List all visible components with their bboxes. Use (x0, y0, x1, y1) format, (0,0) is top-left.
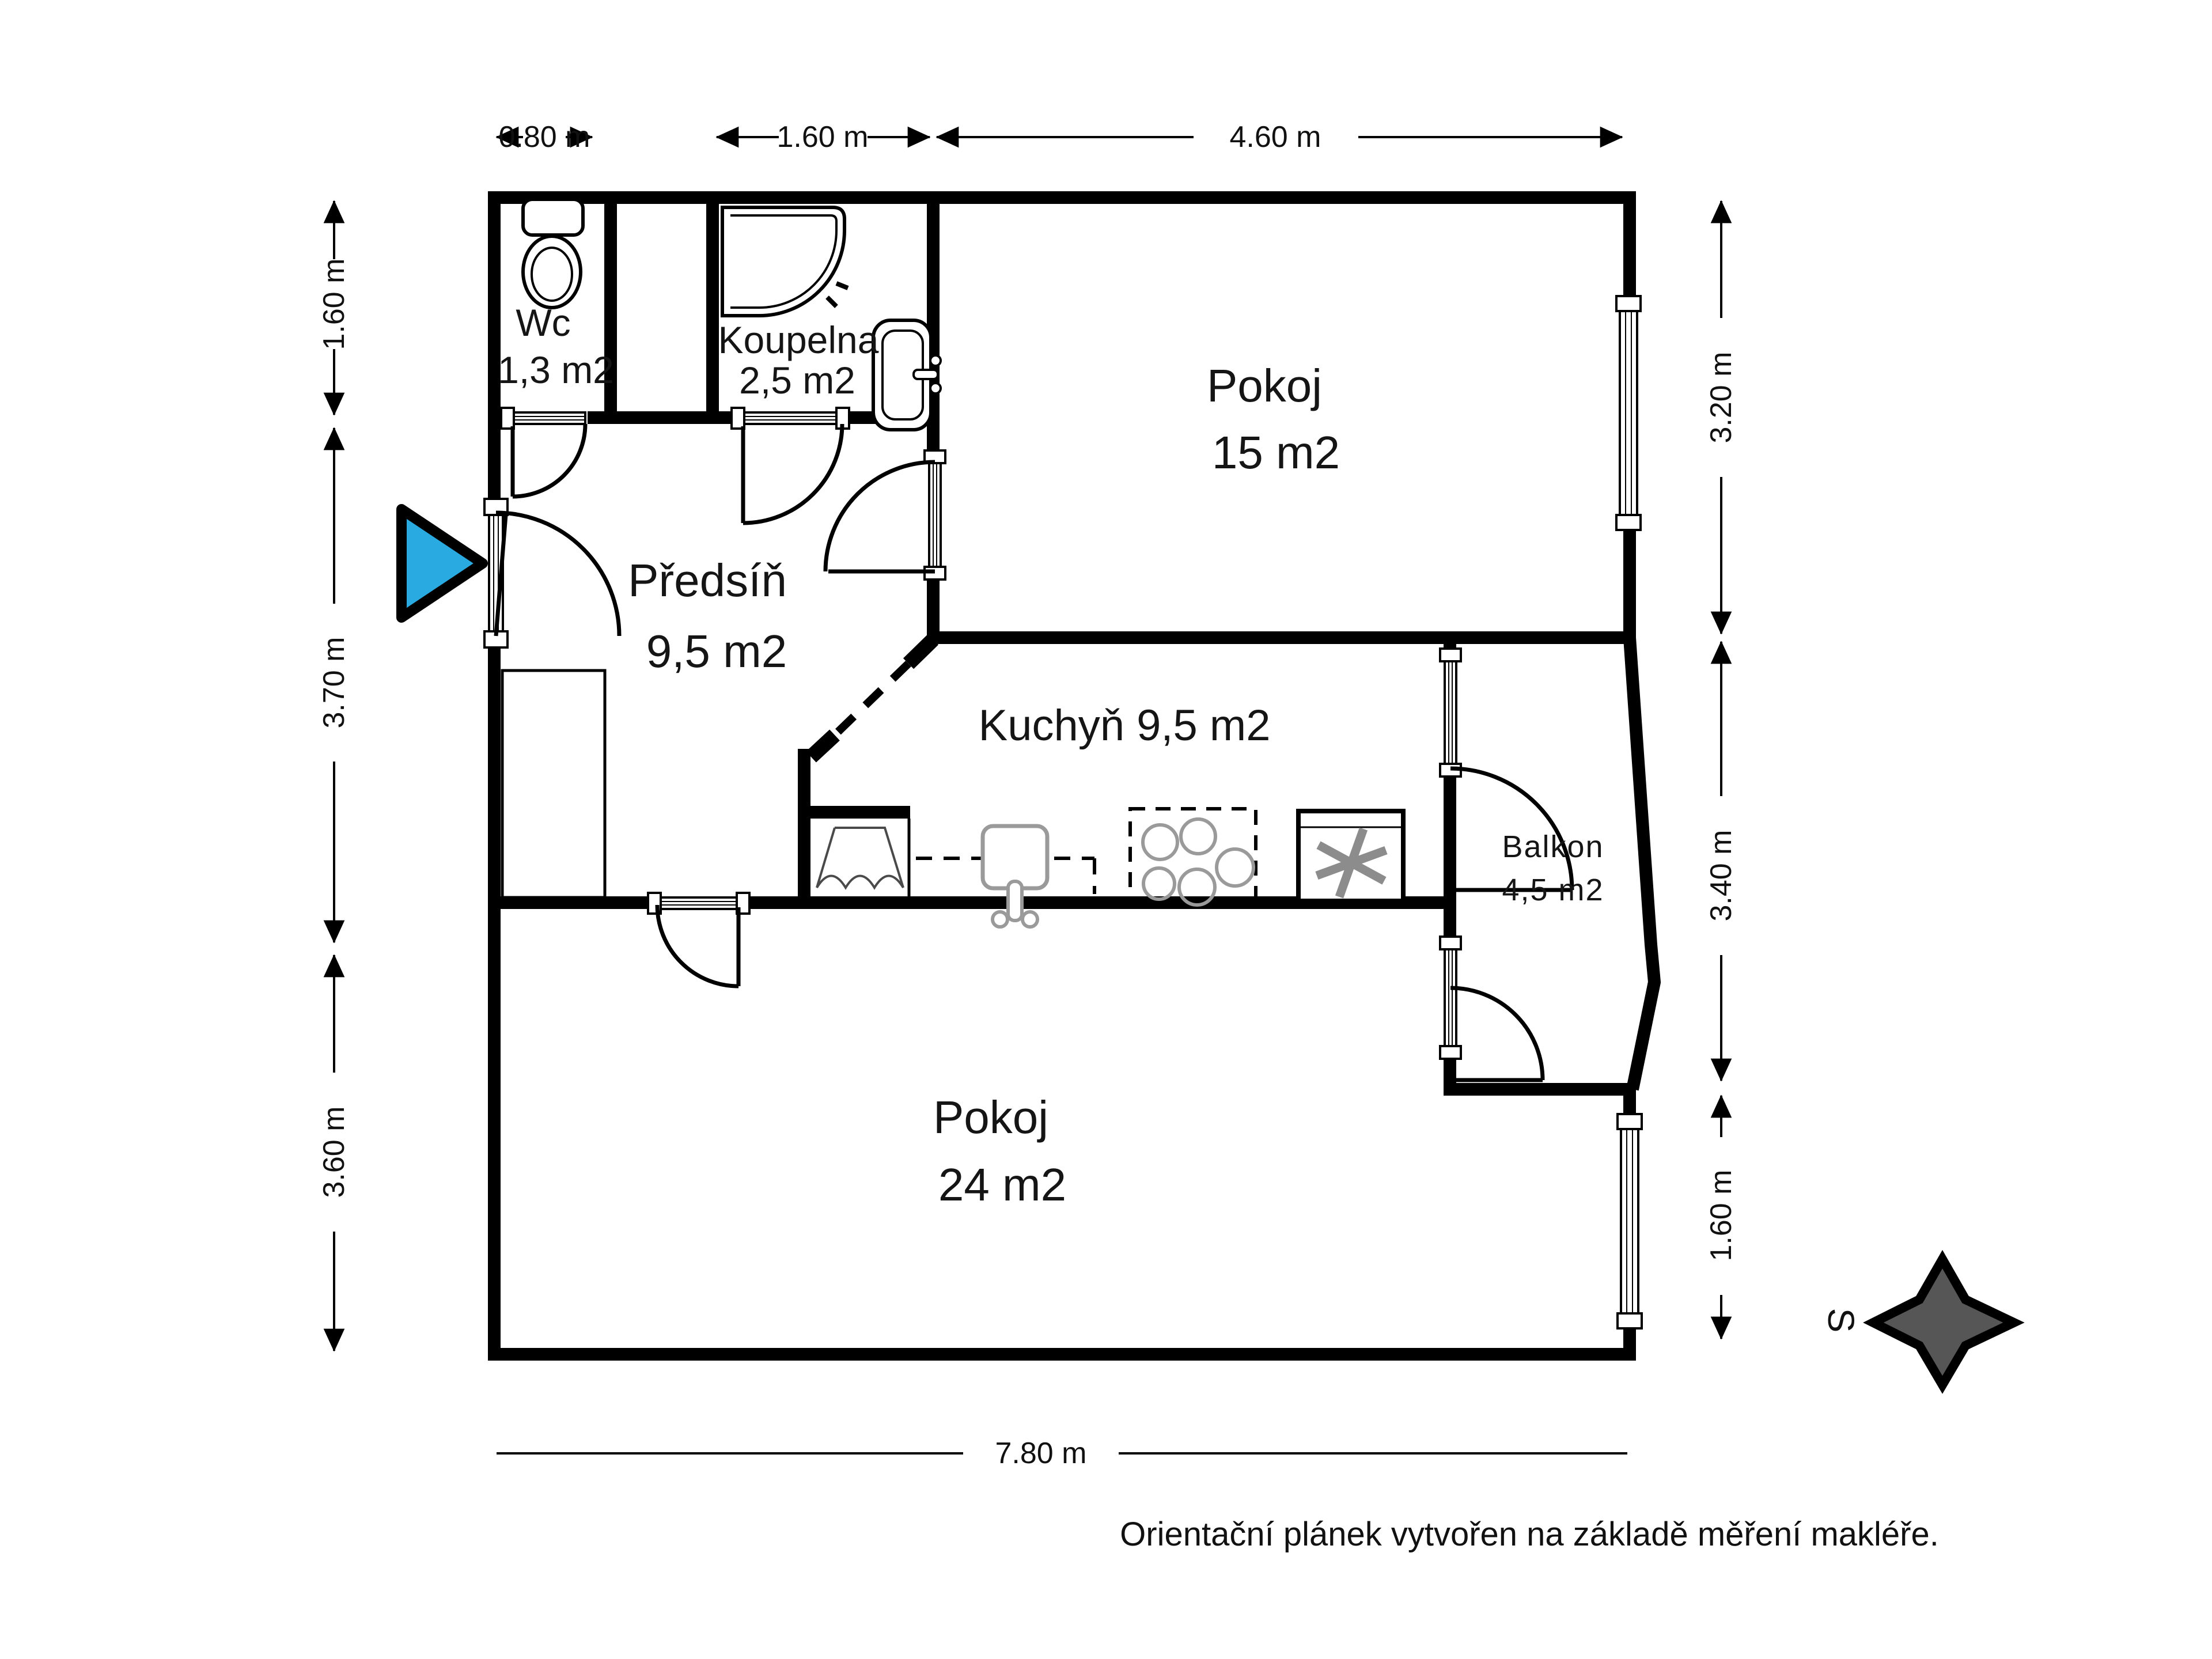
bathroom-door-swing (743, 424, 842, 523)
kitchen-open-passage (811, 639, 933, 757)
dim-top-2: 4.60 m (1230, 122, 1321, 152)
dim-left-2: 3.60 m (319, 1107, 349, 1198)
room-label-pokoj24: Pokoj (933, 1094, 1048, 1141)
stove-icon (1130, 809, 1256, 905)
dim-right-2: 1.60 m (1706, 1170, 1736, 1262)
door-frames (484, 408, 1461, 1059)
dim-left-0: 1.60 m (319, 259, 349, 350)
kitchen-sink-icon (983, 826, 1047, 927)
bathroom-door-frame (732, 408, 849, 429)
room24-door-frame (648, 893, 749, 914)
wc-door-swing (513, 424, 585, 497)
dim-bottom-0: 7.80 m (995, 1438, 1087, 1468)
room-label-kuchyn: Kuchyň 9,5 m2 (979, 704, 1271, 748)
room15-window (1616, 296, 1641, 530)
balcony-door-frame-lower (1440, 937, 1461, 1059)
door-swings (496, 424, 1572, 1080)
wardrobe-icon (502, 671, 605, 897)
dim-left-1: 3.70 m (319, 637, 349, 729)
dim-right-0: 3.20 m (1706, 352, 1736, 444)
room-area-wc: 1,3 m2 (498, 351, 614, 389)
room24-door-swing (657, 905, 738, 986)
floorplan-page: Wc 1,3 m2 Koupelna 2,5 m2 Pokoj 15 m2 Př… (0, 0, 2212, 1659)
toilet-icon (523, 199, 583, 308)
dim-top-1: 1.60 m (777, 122, 869, 152)
balcony-outer-wall (1630, 638, 1654, 1089)
room-label-pokoj15: Pokoj (1207, 363, 1322, 409)
entrance-arrow-icon (402, 509, 483, 618)
dim-right-1: 3.40 m (1706, 830, 1736, 922)
wc-door-frame (501, 408, 585, 429)
washbasin-icon (873, 320, 941, 430)
room-area-pokoj15: 15 m2 (1212, 430, 1340, 476)
room15-door-swing (825, 462, 935, 571)
footer-disclaimer: Orientační plánek vytvořen na základě mě… (1120, 1518, 1939, 1551)
washing-machine-icon (817, 828, 903, 888)
balcony-door-swing-lower (1450, 988, 1543, 1080)
compass-label: S (1823, 1308, 1859, 1333)
dim-top-0: 0.80 m (499, 122, 590, 152)
room-area-balkon: 4,5 m2 (1502, 874, 1604, 906)
room-label-wc: Wc (516, 304, 570, 342)
room15-door-frame (925, 450, 945, 579)
entrance-door-swing (496, 513, 619, 636)
room-area-koupelna: 2,5 m2 (739, 361, 855, 399)
corner-shower-icon (722, 207, 848, 316)
balcony-door-frame-upper (1440, 649, 1461, 777)
floorplan-drawing (0, 0, 2212, 1659)
compass-star-icon (1873, 1259, 2014, 1385)
room-label-balkon: Balkon (1502, 831, 1604, 862)
fridge-icon (1298, 811, 1403, 901)
room-label-koupelna: Koupelna (718, 321, 879, 359)
room-label-predsin: Předsíň (628, 558, 787, 604)
kitchen-counter (817, 809, 1403, 927)
room-area-predsin: 9,5 m2 (646, 628, 787, 675)
room-area-pokoj24: 24 m2 (938, 1162, 1066, 1208)
room24-window (1618, 1114, 1642, 1328)
